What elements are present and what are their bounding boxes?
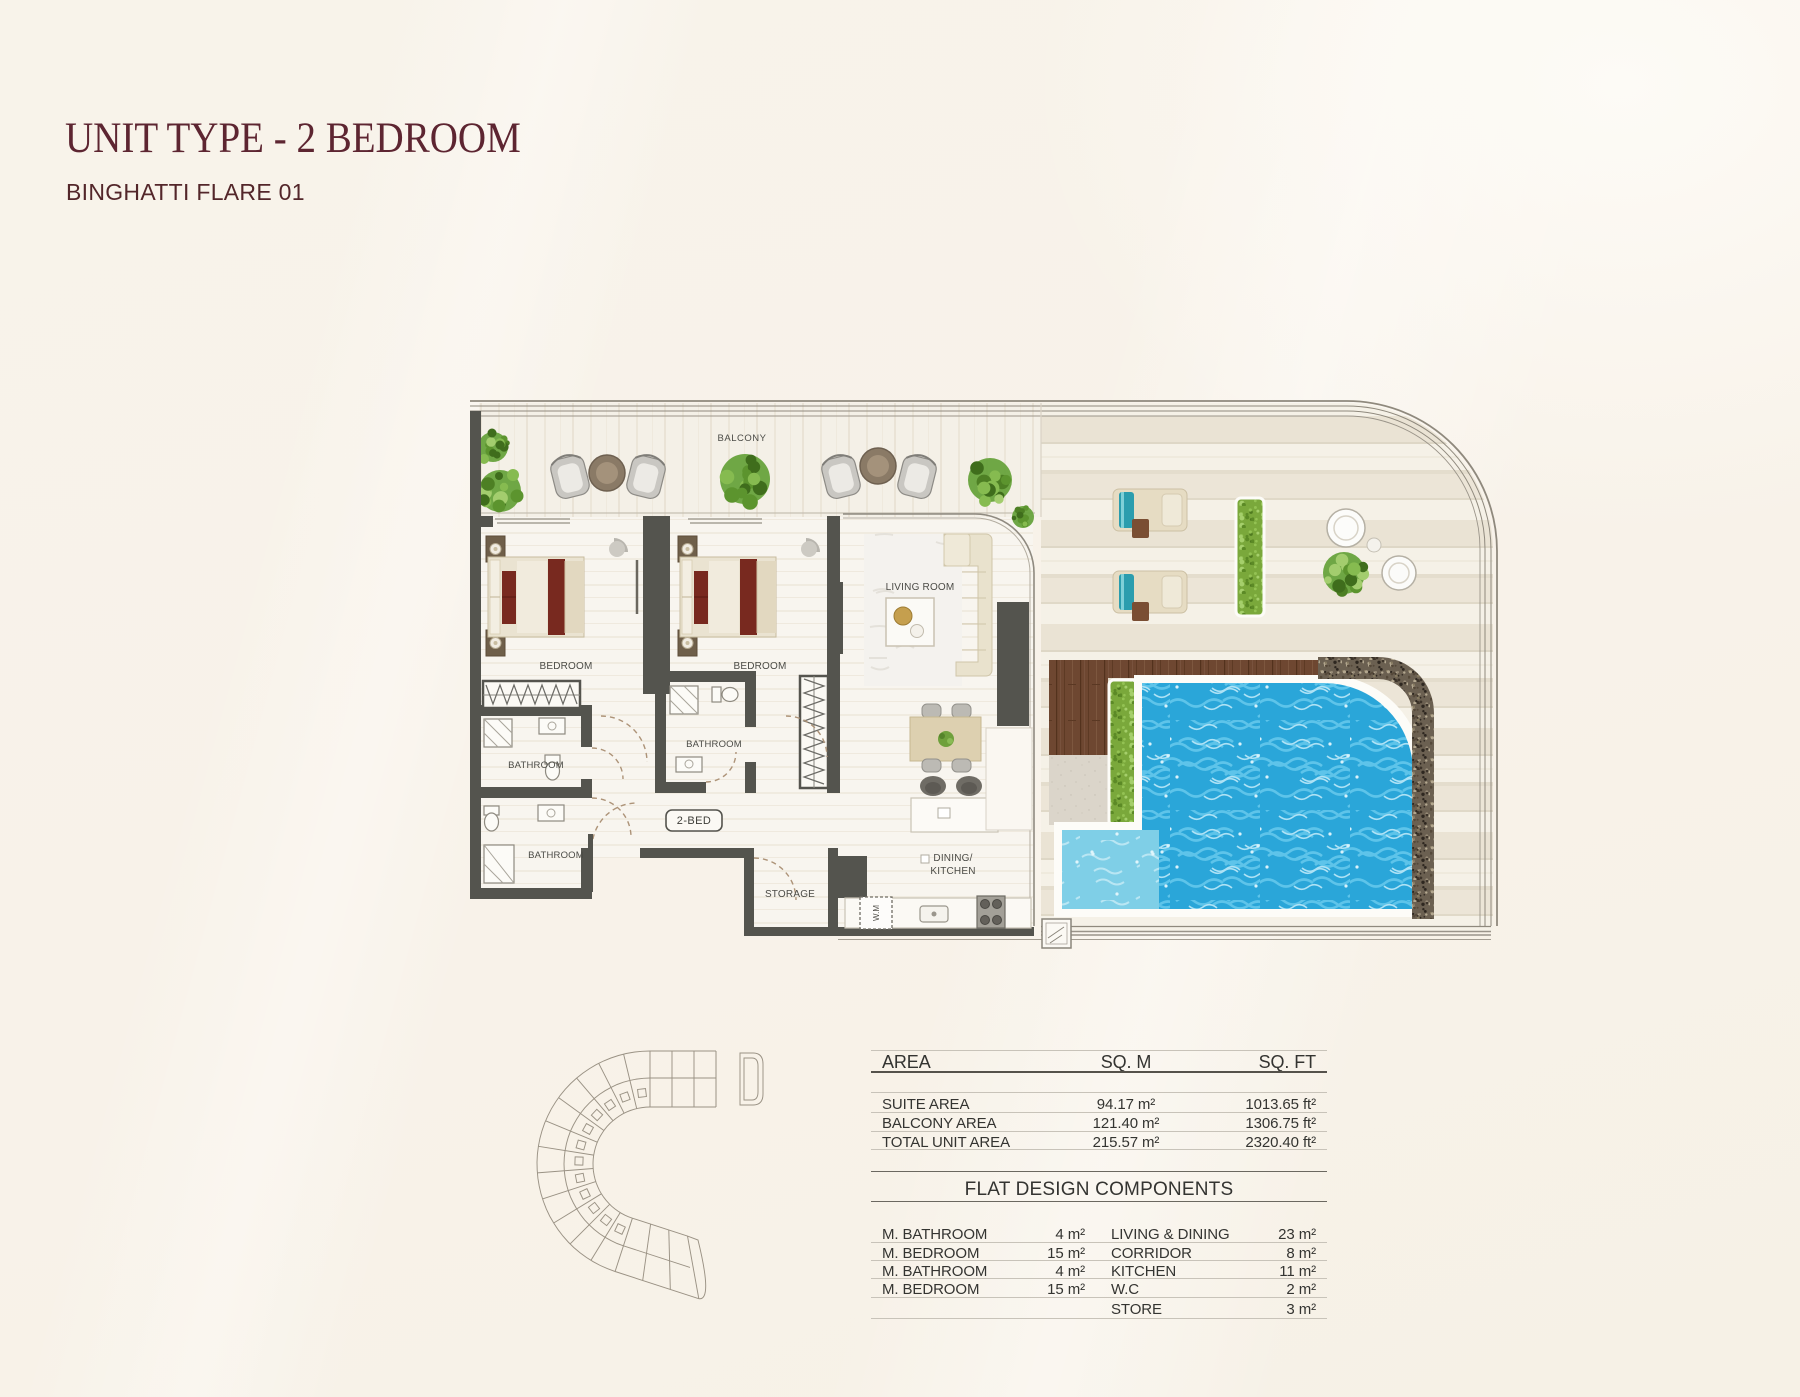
svg-text:BEDROOM: BEDROOM bbox=[733, 661, 786, 672]
svg-text:BATHROOM: BATHROOM bbox=[686, 739, 742, 750]
svg-text:2-BED: 2-BED bbox=[677, 815, 711, 827]
svg-text:BATHROOM: BATHROOM bbox=[528, 850, 584, 861]
svg-text:BATHROOM: BATHROOM bbox=[508, 760, 564, 771]
svg-text:W.M: W.M bbox=[872, 905, 881, 921]
svg-text:LIVING ROOM: LIVING ROOM bbox=[886, 582, 955, 593]
svg-text:DINING/: DINING/ bbox=[933, 853, 972, 864]
svg-text:BEDROOM: BEDROOM bbox=[539, 661, 592, 672]
svg-text:BALCONY: BALCONY bbox=[718, 433, 767, 444]
svg-text:KITCHEN: KITCHEN bbox=[930, 866, 975, 877]
svg-text:STORAGE: STORAGE bbox=[765, 889, 815, 900]
